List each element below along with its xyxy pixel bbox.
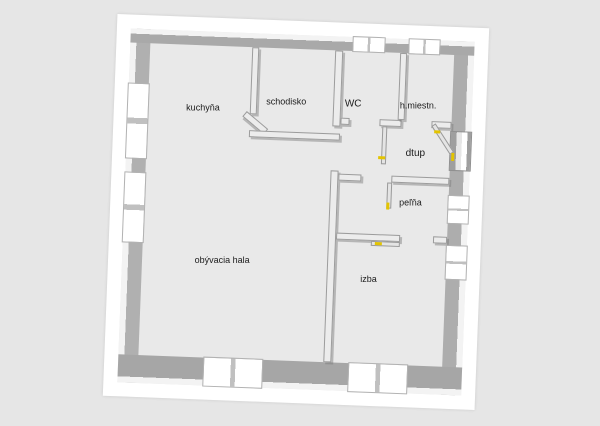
- wall-toprooms-seg1: [340, 118, 349, 125]
- window-left-lower: [122, 171, 147, 243]
- room-label-hala: obývacia hala: [195, 255, 250, 265]
- room-label-kuchyna: kuchyňa: [186, 102, 220, 112]
- wall-vstup-bottom-seg1: [338, 174, 361, 182]
- apartment-floor: [117, 29, 474, 396]
- window-right-izba: [445, 245, 468, 281]
- floorplan-paper: kuchyňa schodisko WC h.miestn. dtup peľň…: [103, 14, 489, 410]
- window-top-miestnost: [408, 38, 441, 55]
- window-left-upper: [125, 82, 150, 159]
- room-label-vstup: dtup: [406, 148, 425, 159]
- window-bottom-hala: [202, 357, 263, 389]
- room-label-schodisko: schodisko: [266, 97, 306, 107]
- window-right-kupelna: [447, 195, 470, 225]
- door-handle-icon: [451, 153, 454, 161]
- window-bottom-izba: [347, 362, 408, 394]
- window-top-wc: [352, 36, 386, 53]
- wall-izba-top-seg2: [433, 236, 447, 244]
- room-label-miestnost: h.miestn.: [400, 101, 437, 111]
- door-handle-icon: [378, 156, 385, 159]
- room-label-izba: izba: [360, 274, 377, 284]
- room-label-wc: WC: [345, 99, 362, 110]
- door-handle-icon: [375, 242, 382, 245]
- room-label-kupelna: peľňa: [399, 197, 422, 207]
- door-handle-icon: [386, 202, 389, 209]
- door-handle-icon: [434, 130, 440, 133]
